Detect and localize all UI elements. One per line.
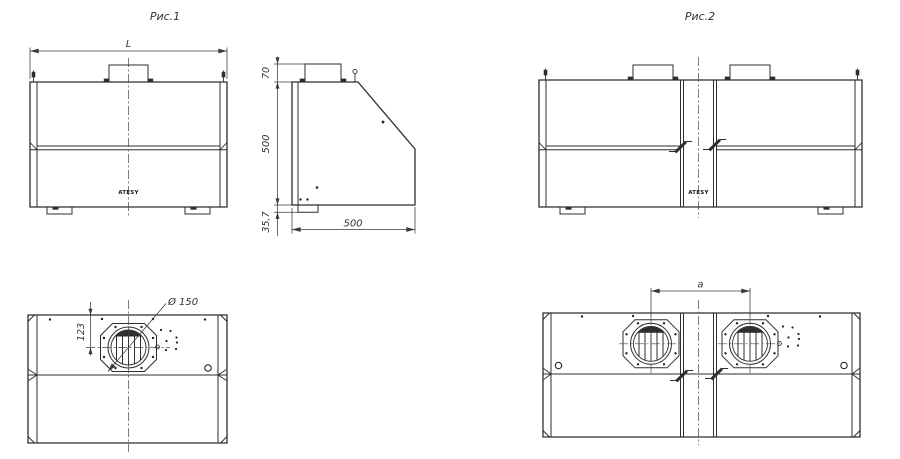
fig2-brand-logo: ATESY <box>688 190 709 196</box>
mounting-hole-right <box>841 362 847 368</box>
fig2-hanger-bolts <box>544 69 860 81</box>
mounting-hole-left <box>555 362 561 368</box>
drawing-svg: Рис.1 Рис.2 ATESY L <box>0 0 900 459</box>
side-flue-duct <box>300 64 347 82</box>
flange-centerlines-v <box>651 316 750 374</box>
fig1-brand-logo: ATESY <box>118 190 139 196</box>
dim-label-500-depth: 500 <box>343 219 362 230</box>
dim-label-500-height: 500 <box>261 134 272 153</box>
hanger-hook-icon <box>353 69 357 82</box>
technical-drawing-sheet: Рис.1 Рис.2 ATESY L <box>0 0 900 459</box>
fig2-bottom-view: a <box>543 280 860 446</box>
fig1-front-view: ATESY L <box>30 39 227 218</box>
fig2-flue-ducts <box>628 65 775 80</box>
dimension-a: a <box>651 280 750 317</box>
dim-label-a: a <box>697 280 703 291</box>
break-mark-icon <box>670 369 728 382</box>
dim-label-L: L <box>126 39 132 50</box>
dim-label-123: 123 <box>76 323 87 341</box>
side-foot <box>298 205 318 212</box>
mounting-hole <box>205 365 211 371</box>
fig2-title: Рис.2 <box>685 10 715 23</box>
dim-label-70: 70 <box>261 67 272 79</box>
fig1-title: Рис.1 <box>150 10 180 23</box>
fig2-front-view: ATESY <box>539 57 862 218</box>
dim-label-357: 35,7 <box>261 211 272 232</box>
fig2-feet <box>560 207 843 214</box>
dimension-depth-500: 500 <box>292 207 415 234</box>
dim-label-d150: Ø 150 <box>167 296 198 308</box>
fig1-bottom-view: Ø 150 123 <box>28 296 227 452</box>
fig1-side-view: 70 500 35,7 500 <box>261 57 415 237</box>
screw-hole-dots <box>778 325 801 347</box>
